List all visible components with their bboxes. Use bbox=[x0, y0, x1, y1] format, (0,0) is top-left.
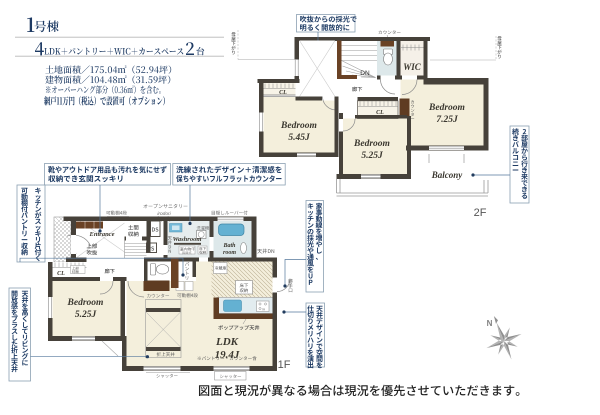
svg-text:5.25J: 5.25J bbox=[75, 310, 97, 320]
svg-text:DN: DN bbox=[360, 70, 370, 77]
svg-text:7.25J: 7.25J bbox=[436, 115, 458, 125]
svg-text:5.45J: 5.45J bbox=[288, 133, 310, 143]
svg-text:5.25J: 5.25J bbox=[361, 151, 383, 161]
svg-text:1F: 1F bbox=[278, 359, 291, 371]
svg-text:CL: CL bbox=[57, 271, 65, 277]
svg-text:Balcony: Balcony bbox=[431, 170, 464, 180]
svg-text:LDK: LDK bbox=[215, 336, 239, 348]
svg-text:WIC: WIC bbox=[403, 62, 422, 72]
svg-text:Bedroom: Bedroom bbox=[353, 139, 390, 149]
svg-text:2F: 2F bbox=[474, 207, 487, 219]
svg-text:Entrance: Entrance bbox=[89, 231, 115, 238]
svg-text:Bedroom: Bedroom bbox=[280, 121, 317, 131]
svg-text:room: room bbox=[223, 250, 236, 256]
svg-text:Bedroom: Bedroom bbox=[428, 103, 465, 113]
svg-text:N: N bbox=[487, 319, 493, 328]
svg-text:Bedroom: Bedroom bbox=[67, 298, 104, 308]
svg-text:Washroom: Washroom bbox=[173, 236, 202, 243]
svg-text:Bath: Bath bbox=[222, 243, 236, 249]
svg-text:irodori: irodori bbox=[157, 211, 171, 217]
